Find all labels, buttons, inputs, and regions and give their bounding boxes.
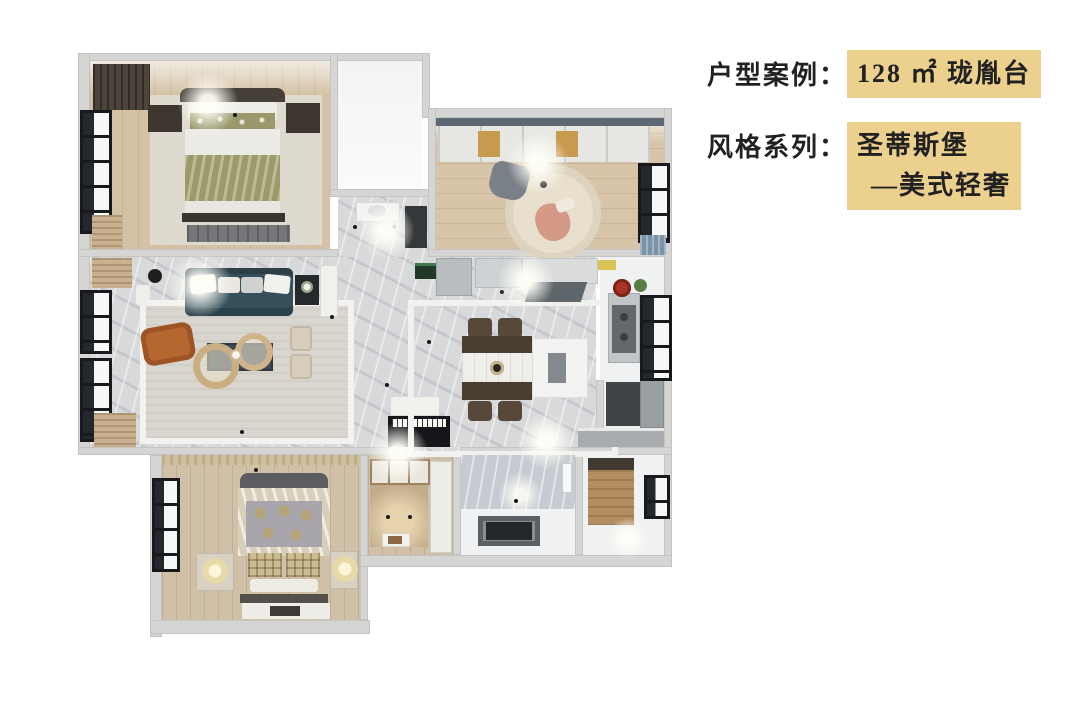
nook-door [430, 461, 452, 553]
wall-living-bottom [78, 447, 392, 455]
bed2-curtain-wall [162, 455, 360, 465]
downlight-dot [353, 225, 357, 229]
wardrobe-gold-accent [478, 131, 500, 157]
caption-line-2-label: 风格系列： [707, 122, 847, 164]
caption-line-1-value: 128 ㎡ 珑胤台 [847, 50, 1041, 98]
bed2-plaid-pillow [286, 553, 320, 577]
downlight-dot [408, 515, 412, 519]
burner [620, 313, 628, 321]
yellow-appliance [598, 260, 616, 270]
fridge [436, 258, 472, 296]
light-glow [178, 73, 238, 133]
bed2-foot-rail [240, 594, 328, 603]
downlight-dot [254, 468, 258, 472]
bed2-plaid-pillow [248, 553, 282, 577]
bed2-headboard [240, 473, 328, 489]
master-radiator-panel [92, 215, 122, 249]
side-table-flowers [301, 281, 313, 293]
island-panel [548, 353, 566, 383]
living-radiator-panel [94, 413, 136, 447]
table-flowers [230, 349, 242, 361]
light-glow [368, 423, 428, 483]
master-bed-frame [182, 213, 285, 222]
wall-kids-left [428, 108, 436, 257]
bed2-white-pillows [250, 579, 318, 592]
deco-side-table [136, 285, 150, 305]
kids-curtain [640, 235, 666, 255]
light-glow [498, 253, 554, 309]
nightstand-left [148, 105, 182, 132]
light-glow [508, 133, 568, 193]
downlight-dot [240, 430, 244, 434]
wall-utility-bottom [330, 189, 430, 197]
centerpiece [490, 361, 504, 375]
bed2-medallion-panel [246, 501, 322, 547]
nightstand-right [286, 103, 320, 133]
kitchen-tall-cabinet [606, 382, 640, 426]
master-wardrobe [93, 64, 150, 110]
ottoman [290, 354, 312, 379]
floor-lamp [148, 269, 162, 283]
ottoman [290, 326, 312, 351]
sofa-cushion [263, 274, 291, 295]
kitchen-window [640, 295, 672, 381]
light-glow [358, 203, 414, 259]
light-glow [518, 413, 574, 469]
laundry-wood-cabinet [588, 470, 634, 525]
caption-line-1-label: 户型案例： [707, 50, 847, 92]
style-series-subtitle: —美式轻奢 [857, 166, 1011, 206]
burner [620, 333, 628, 341]
master-bed-sheet [185, 129, 280, 157]
wall-outer-top-left [78, 53, 430, 61]
wall-bed2-right [360, 455, 368, 620]
downlight-dot [386, 515, 390, 519]
dining-chair [468, 318, 492, 338]
bathroom-window [562, 463, 572, 493]
dining-chair [468, 401, 492, 421]
master-bed-blanket [185, 155, 280, 203]
kids-wardrobe-trim [436, 118, 664, 126]
wall-nook-bath [453, 455, 461, 555]
laundry-window [644, 475, 670, 519]
bed2-lamp-right [332, 556, 358, 582]
downlight-dot [385, 383, 389, 387]
kids-window [638, 163, 670, 243]
plant [634, 279, 647, 292]
hall-divider-cabinet [320, 265, 338, 317]
downlight-dot [427, 340, 431, 344]
kitchen-cabinet [640, 380, 664, 428]
bathtub-basin [486, 522, 532, 540]
downlight-dot [330, 315, 334, 319]
red-plate-decor [613, 279, 631, 297]
tv-bench [187, 225, 290, 242]
dining-chair [498, 318, 522, 338]
downlight-dot [233, 113, 237, 117]
wall-bath-laundry [575, 455, 583, 555]
nook-book [388, 536, 402, 544]
style-series-name: 圣蒂斯堡 [857, 131, 969, 160]
caption-line-2: 风格系列：圣蒂斯堡—美式轻奢 [707, 122, 1021, 210]
kitchen-lower-cabinets [578, 428, 664, 447]
caption-line-1: 户型案例：128 ㎡ 珑胤台 [707, 50, 1041, 98]
caption-line-2-value: 圣蒂斯堡—美式轻奢 [847, 122, 1021, 210]
living-radiator-panel [92, 258, 132, 288]
bed2-lamp-left [202, 558, 228, 584]
bed2-window [152, 478, 180, 572]
downlight-dot [514, 499, 518, 503]
poster: 户型案例：128 ㎡ 珑胤台 风格系列：圣蒂斯堡—美式轻奢 [0, 0, 1080, 703]
light-glow [168, 253, 232, 317]
bed2-mat [270, 606, 300, 616]
wall-bed2-bottom [150, 620, 370, 634]
living-window-upper [80, 290, 112, 354]
laundry-cabinet-top [588, 458, 634, 470]
sofa-cushion [241, 277, 263, 293]
light-glow [608, 518, 648, 558]
floor-plan [78, 53, 672, 637]
wall-outer-top-right [422, 108, 672, 118]
dining-chair [498, 401, 522, 421]
wall-master-right [330, 53, 338, 197]
bathroom-sparkle [498, 473, 542, 517]
living-rug [140, 300, 354, 444]
utility-room-floor [338, 61, 422, 189]
